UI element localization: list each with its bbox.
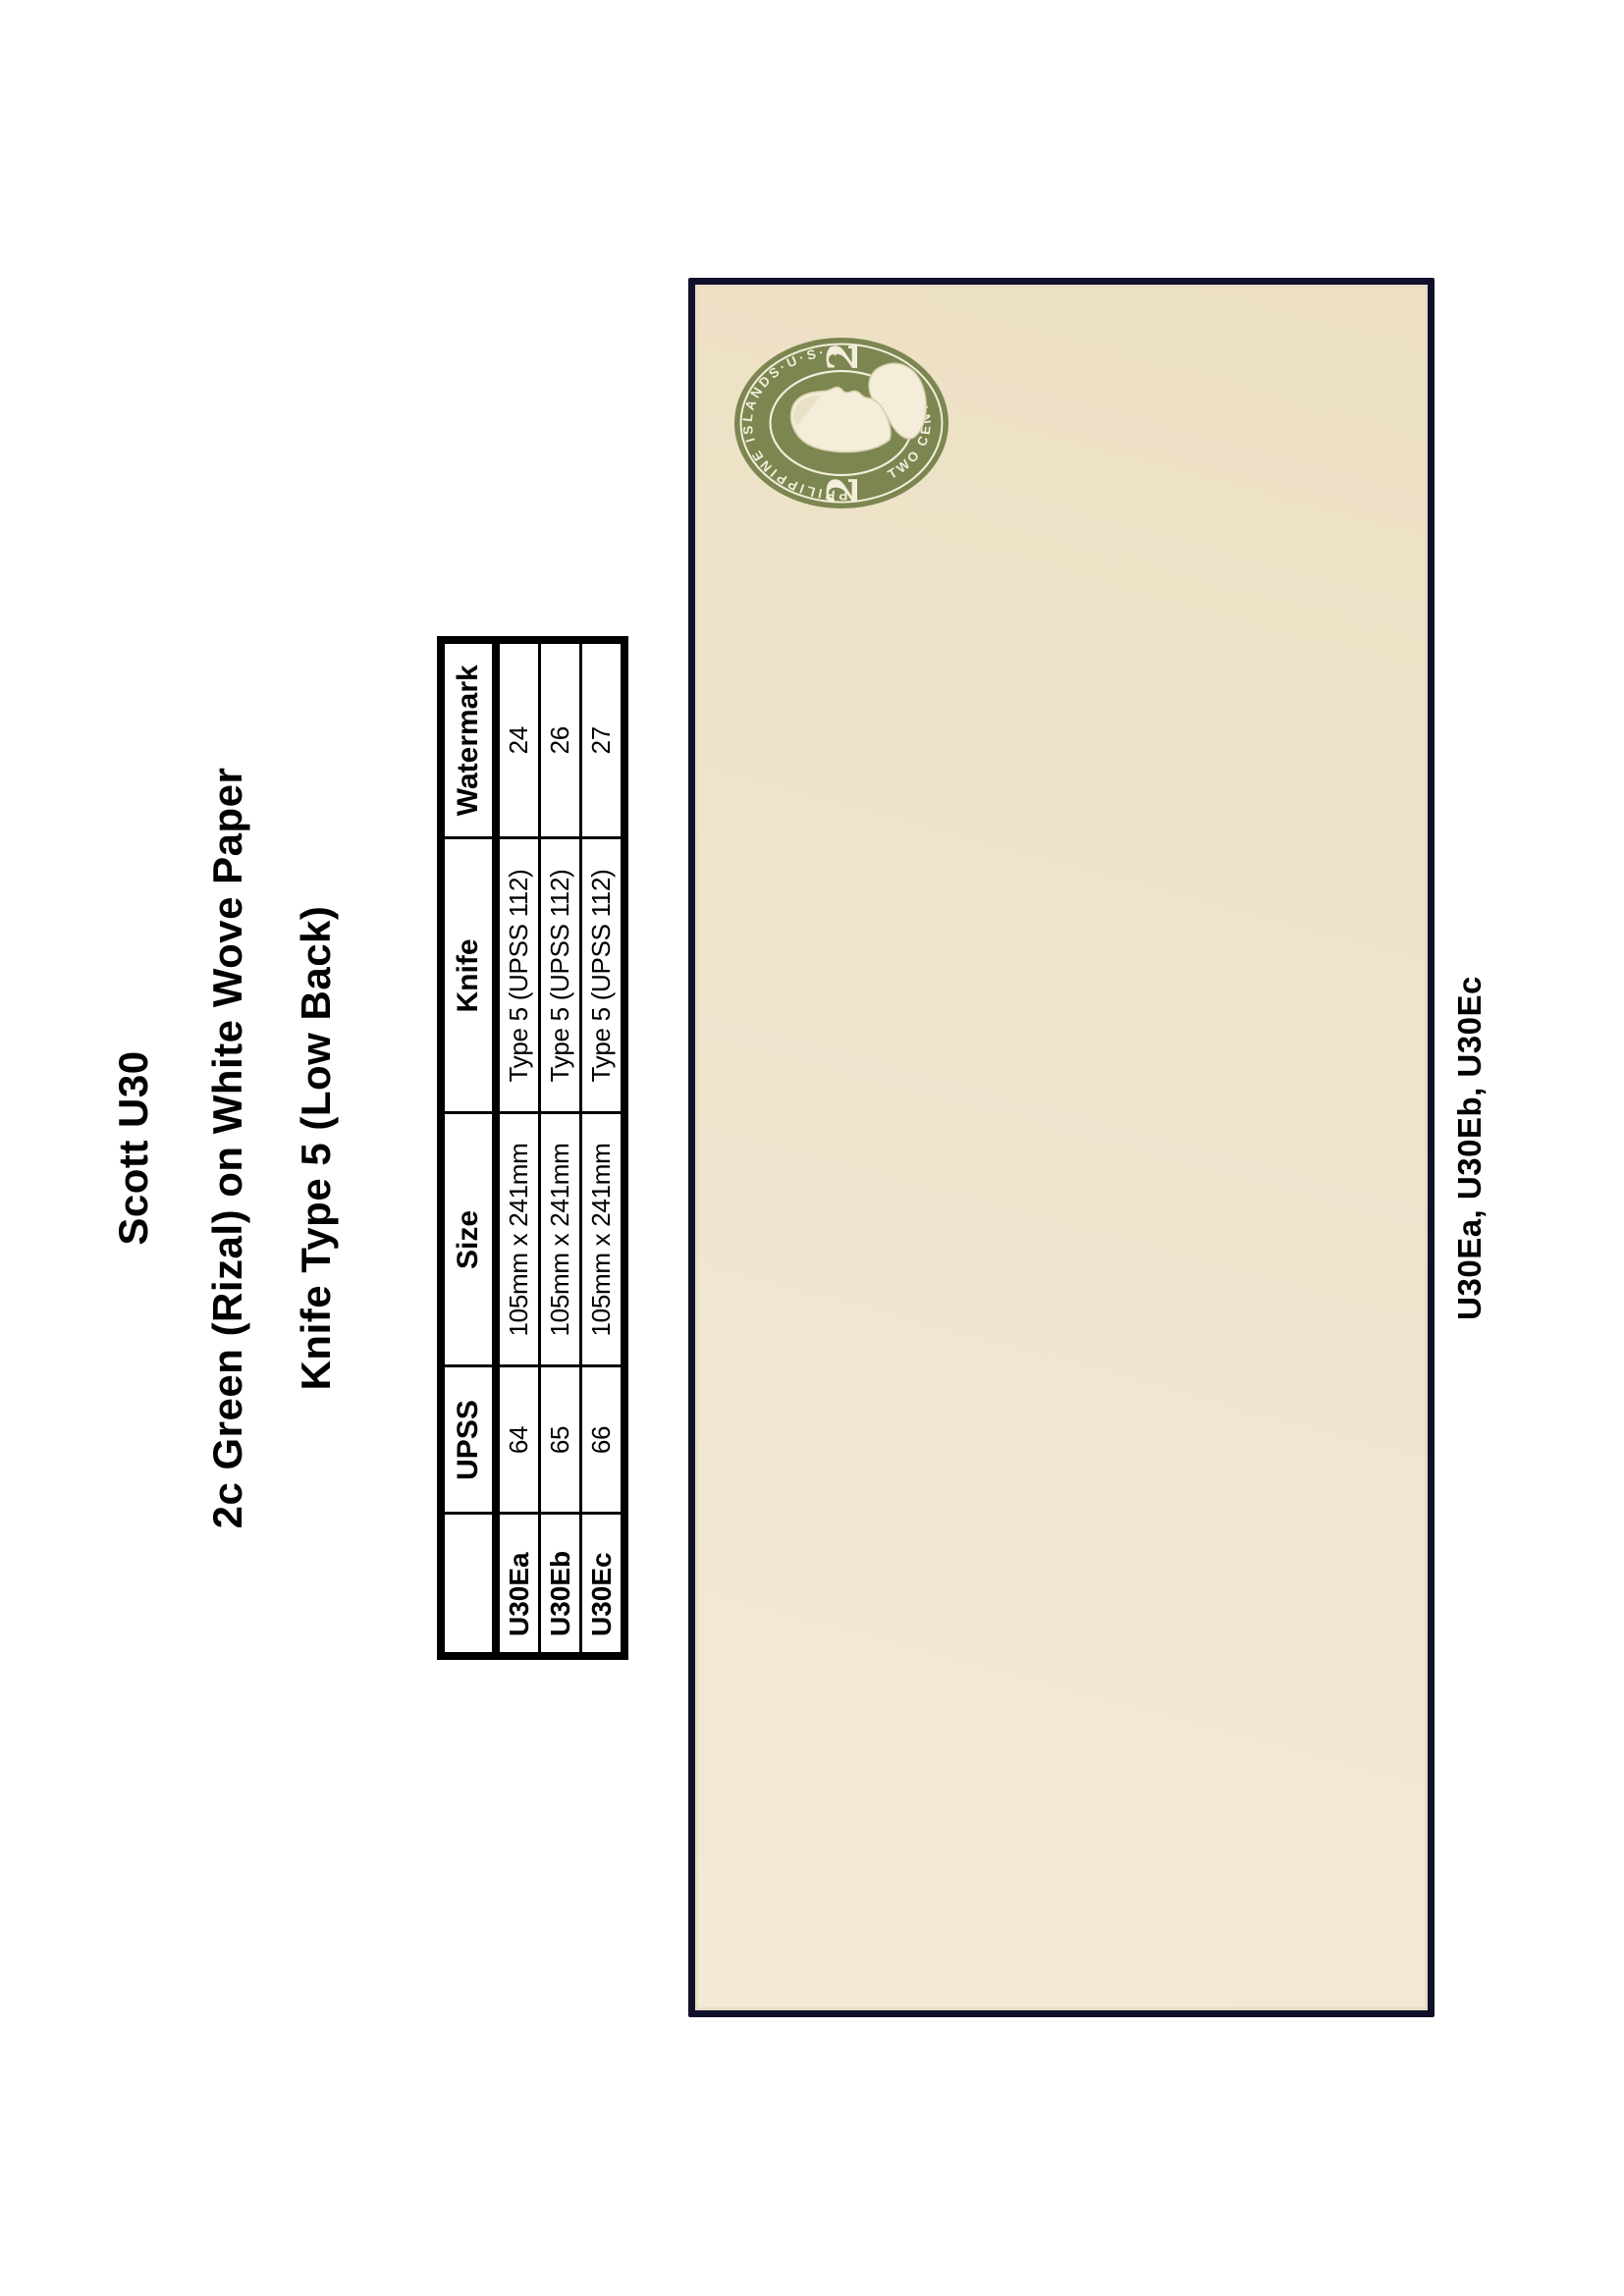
knife-cell: Type 5 (UPSS 112)	[540, 838, 581, 1113]
header-upss: UPSS	[441, 1366, 496, 1514]
size-cell: 105mm x 241mm	[540, 1113, 581, 1366]
table-header-row: UPSS Size Knife Watermark	[441, 640, 496, 1656]
embossed-stamp-indicium: PHILIPPINE ISLANDS·U·S·A· TWO CENTAVOS 2…	[732, 337, 950, 511]
header-blank	[441, 1514, 496, 1656]
variants-table: UPSS Size Knife Watermark U30Ea 64 105mm…	[437, 636, 628, 1660]
stamp-denomination-left: 2	[819, 476, 867, 505]
page-title: Scott U30	[110, 1050, 157, 1245]
row-label: U30Ec	[581, 1514, 625, 1656]
knife-cell: Type 5 (UPSS 112)	[496, 838, 540, 1113]
size-cell: 105mm x 241mm	[496, 1113, 540, 1366]
upss-cell: 65	[540, 1366, 581, 1514]
table-row: U30Eb 65 105mm x 241mm Type 5 (UPSS 112)…	[540, 640, 581, 1656]
upss-cell: 64	[496, 1366, 540, 1514]
header-knife: Knife	[441, 838, 496, 1113]
page-subtitle: 2c Green (Rizal) on White Wove Paper	[204, 768, 251, 1529]
knife-cell: Type 5 (UPSS 112)	[581, 838, 625, 1113]
table-row: U30Ec 66 105mm x 241mm Type 5 (UPSS 112)…	[581, 640, 625, 1656]
header-size: Size	[441, 1113, 496, 1366]
row-label: U30Ea	[496, 1514, 540, 1656]
row-label: U30Eb	[540, 1514, 581, 1656]
stamp-denomination-right: 2	[819, 343, 867, 371]
knife-type-heading: Knife Type 5 (Low Back)	[293, 906, 340, 1391]
watermark-cell: 27	[581, 640, 625, 838]
watermark-cell: 26	[540, 640, 581, 838]
table-row: U30Ea 64 105mm x 241mm Type 5 (UPSS 112)…	[496, 640, 540, 1656]
upss-cell: 66	[581, 1366, 625, 1514]
envelope-scan: PHILIPPINE ISLANDS·U·S·A· TWO CENTAVOS 2…	[688, 279, 1435, 2018]
size-cell: 105mm x 241mm	[581, 1113, 625, 1366]
scanned-page: Scott U30 2c Green (Rizal) on White Wove…	[0, 0, 1624, 2296]
envelope-caption: U30Ea, U30Eb, U30Ec	[1450, 976, 1489, 1320]
watermark-cell: 24	[496, 640, 540, 838]
header-watermark: Watermark	[441, 640, 496, 838]
rotated-page-content: Scott U30 2c Green (Rizal) on White Wove…	[0, 0, 1624, 2296]
